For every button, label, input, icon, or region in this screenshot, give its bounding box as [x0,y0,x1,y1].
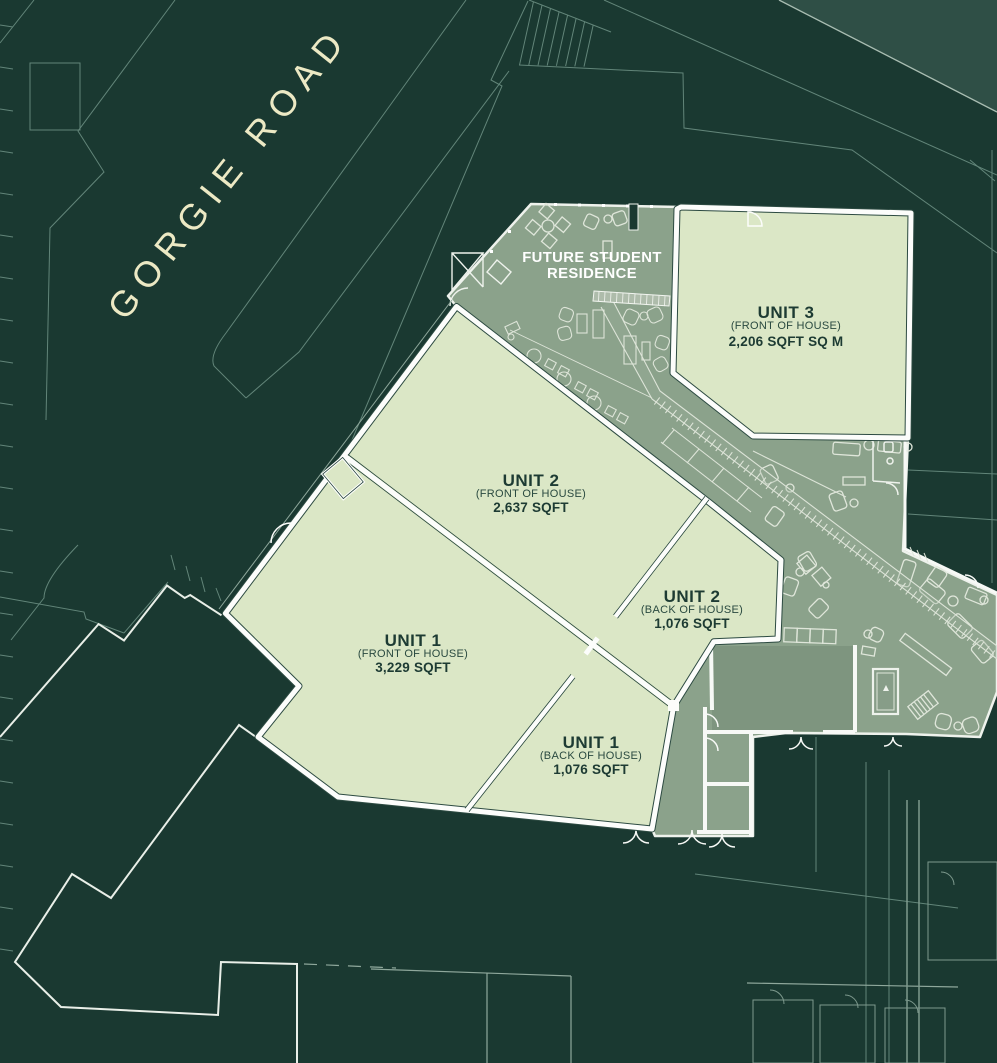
svg-text:(FRONT OF HOUSE): (FRONT OF HOUSE) [476,488,586,500]
svg-text:3,229 SQFT: 3,229 SQFT [375,660,451,675]
svg-text:1,076 SQFT: 1,076 SQFT [654,616,730,631]
svg-text:(FRONT OF HOUSE): (FRONT OF HOUSE) [358,648,468,660]
svg-text:2,637 SQFT: 2,637 SQFT [493,500,569,515]
svg-text:(BACK OF HOUSE): (BACK OF HOUSE) [540,750,642,762]
svg-text:RESIDENCE: RESIDENCE [547,266,637,282]
svg-text:(BACK OF HOUSE): (BACK OF HOUSE) [641,604,743,616]
svg-text:1,076 SQFT: 1,076 SQFT [553,762,629,777]
svg-text:FUTURE STUDENT: FUTURE STUDENT [522,250,662,266]
svg-text:2,206 SQFT SQ M: 2,206 SQFT SQ M [729,334,844,349]
svg-text:(FRONT OF HOUSE): (FRONT OF HOUSE) [731,320,841,332]
